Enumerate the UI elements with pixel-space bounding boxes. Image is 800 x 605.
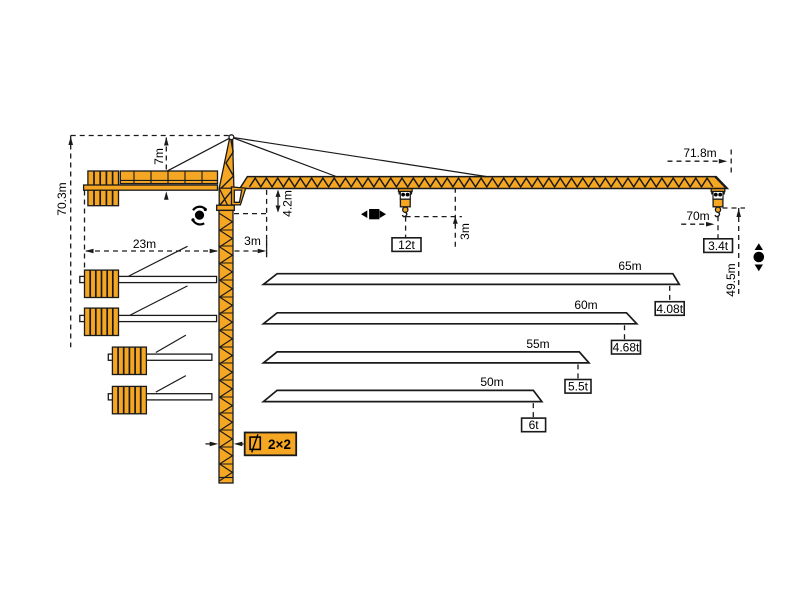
svg-text:5.5t: 5.5t: [568, 380, 589, 394]
svg-text:70.3m: 70.3m: [55, 182, 69, 215]
svg-text:12t: 12t: [398, 238, 415, 252]
svg-text:6t: 6t: [529, 418, 540, 432]
svg-text:50m: 50m: [480, 375, 503, 389]
svg-text:65m: 65m: [618, 259, 641, 273]
svg-text:7m: 7m: [152, 148, 166, 165]
svg-text:49.5m: 49.5m: [724, 263, 738, 296]
svg-text:3m: 3m: [458, 223, 472, 240]
svg-text:4.08t: 4.08t: [656, 302, 683, 316]
svg-text:55m: 55m: [526, 337, 549, 351]
svg-text:60m: 60m: [574, 298, 597, 312]
svg-text:4.68t: 4.68t: [613, 341, 640, 355]
svg-text:3m: 3m: [244, 234, 261, 248]
svg-text:70m: 70m: [686, 209, 709, 223]
svg-text:2×2: 2×2: [268, 437, 291, 452]
svg-text:71.8m: 71.8m: [683, 146, 716, 160]
svg-text:3.4t: 3.4t: [708, 239, 729, 253]
svg-text:4.2m: 4.2m: [281, 190, 295, 217]
svg-text:23m: 23m: [133, 237, 156, 251]
